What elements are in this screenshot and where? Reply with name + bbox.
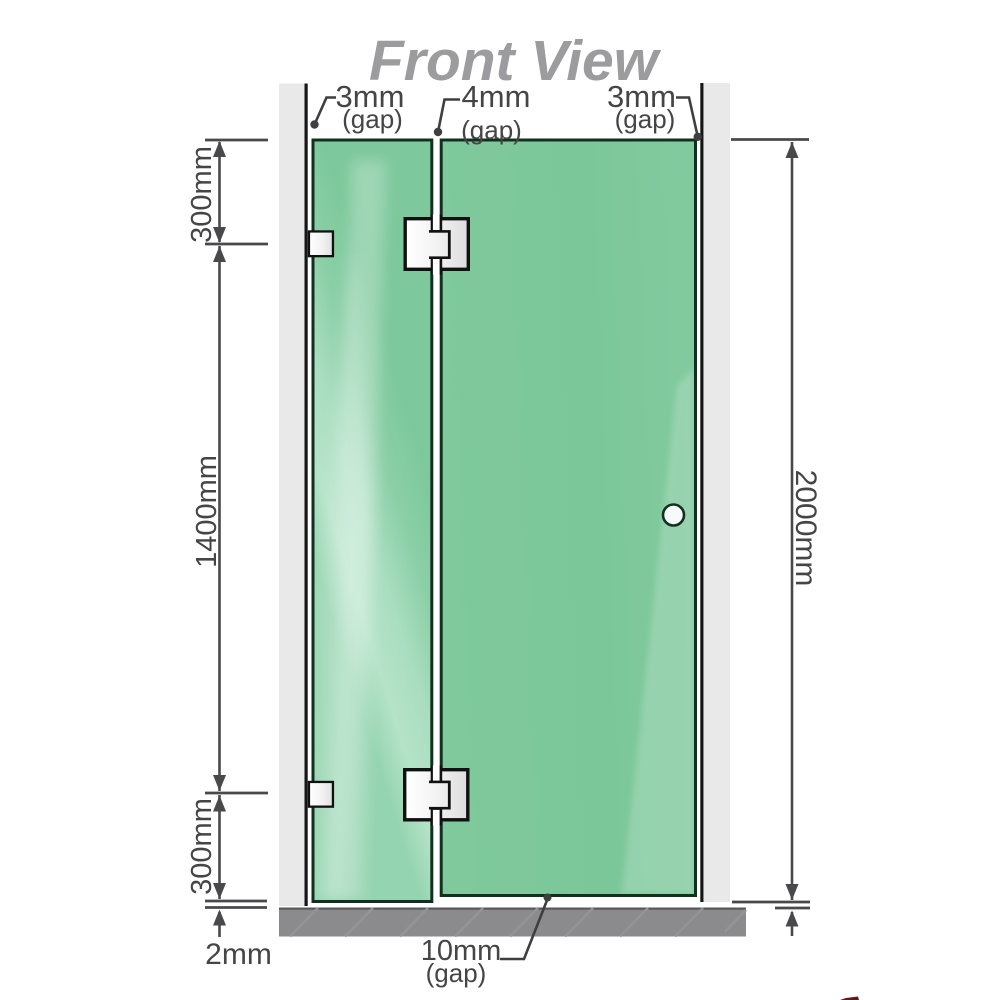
svg-text:300mm: 300mm xyxy=(186,798,218,895)
svg-text:4mm: 4mm xyxy=(462,79,531,114)
svg-text:(gap): (gap) xyxy=(426,958,487,988)
svg-text:300mm: 300mm xyxy=(186,146,218,243)
svg-text:(gap): (gap) xyxy=(615,104,676,134)
svg-text:1400mm: 1400mm xyxy=(191,455,223,568)
svg-text:(gap): (gap) xyxy=(342,104,403,134)
svg-text:2mm: 2mm xyxy=(205,938,272,971)
svg-text:(gap): (gap) xyxy=(461,115,522,145)
svg-text:2000mm: 2000mm xyxy=(789,470,822,587)
